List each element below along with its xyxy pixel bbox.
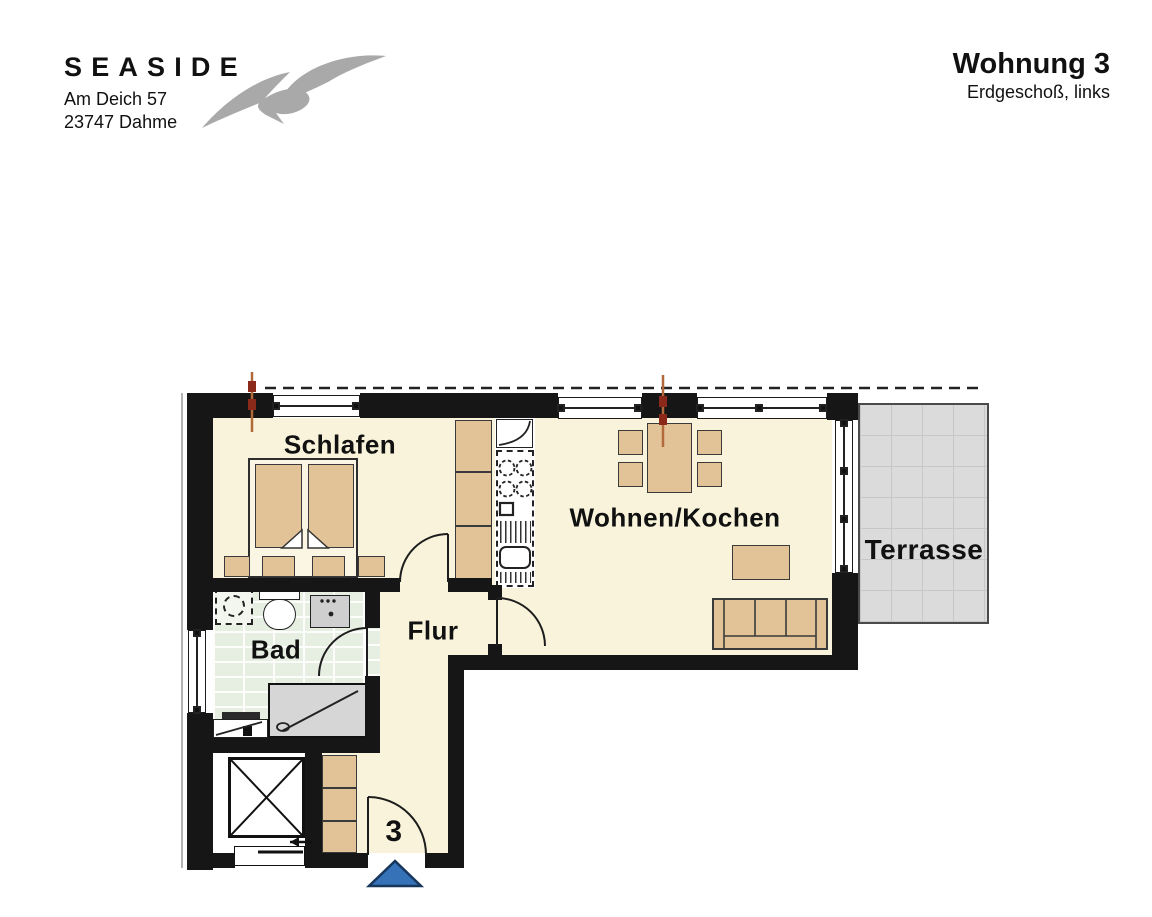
bathroom-door-opening — [365, 628, 380, 676]
wardrobe-shelf-line — [323, 820, 356, 822]
bedroom-wardrobe — [455, 420, 492, 580]
terrace-door-window — [835, 420, 853, 573]
entrance-arrow-icon — [369, 861, 421, 886]
wardrobe-shelf-line — [456, 525, 491, 527]
stair-threshold — [234, 846, 305, 866]
kitchen-appliance-hatch — [500, 572, 531, 583]
wall-segment — [187, 393, 213, 630]
radiator — [222, 712, 260, 719]
bedroom-door-opening — [400, 578, 448, 592]
bed-mattress-left — [255, 464, 302, 548]
room-label-terrace: Terrasse — [865, 534, 984, 566]
wall-segment — [360, 393, 558, 418]
page-subtitle: Erdgeschoß, links — [967, 82, 1110, 103]
dining-chair — [697, 462, 722, 487]
wall-segment — [187, 713, 213, 870]
page-title: Wohnung 3 — [953, 48, 1110, 81]
address-line2: 23747 Dahme — [64, 111, 177, 134]
wall-segment — [187, 853, 235, 868]
toilet-bowl — [263, 599, 296, 630]
room-label-living: Wohnen/Kochen — [569, 503, 780, 534]
entrance-wardrobe — [322, 755, 357, 853]
shower — [268, 683, 367, 738]
bed-mattress-right — [308, 464, 354, 548]
bed-foot-left — [262, 556, 295, 577]
entrance-number-label: 3 — [385, 815, 402, 849]
kitchen-sink-unit — [496, 419, 533, 448]
wardrobe-shelf-line — [323, 787, 356, 789]
brand-address: Am Deich 57 23747 Dahme — [64, 88, 177, 134]
brand-logo-text: SEASIDE — [64, 52, 247, 83]
seagull-right-wing — [284, 55, 386, 98]
room-label-bath: Bad — [251, 635, 302, 666]
room-label-hall: Flur — [407, 616, 458, 647]
room-label-bedroom: Schlafen — [284, 430, 396, 461]
kitchen-appliance-hatch — [500, 521, 531, 543]
wall-segment — [365, 578, 380, 628]
kitchen-basin — [499, 546, 531, 569]
bathroom-window — [188, 630, 206, 713]
elevator — [228, 757, 305, 838]
wall-segment — [448, 578, 492, 592]
wall-segment — [425, 853, 464, 868]
living-window-right — [697, 397, 827, 419]
stair-steps-box — [213, 719, 268, 738]
wall-segment — [832, 573, 858, 670]
wall-segment — [448, 655, 858, 670]
seagull-body — [258, 89, 309, 124]
wall-segment — [305, 853, 368, 868]
nightstand-right — [358, 556, 385, 577]
wall-segment — [187, 738, 380, 753]
wall-segment — [305, 753, 322, 853]
wardrobe-shelf-line — [456, 471, 491, 473]
bedroom-window — [273, 395, 360, 417]
wall-segment — [642, 393, 697, 418]
dining-chair — [618, 430, 643, 455]
address-line1: Am Deich 57 — [64, 88, 177, 111]
sofa — [712, 598, 828, 650]
coffee-table — [732, 545, 790, 580]
wall-segment — [488, 585, 502, 600]
dining-table — [647, 423, 692, 493]
bathroom-sink — [310, 595, 350, 628]
floorplan-page: SEASIDE Am Deich 57 23747 Dahme Wohnung … — [0, 0, 1152, 917]
washer-drum — [223, 595, 245, 617]
nightstand-left — [224, 556, 250, 577]
dining-chair — [618, 462, 643, 487]
washing-machine — [215, 587, 253, 625]
wall-segment — [448, 655, 464, 867]
terrace-area — [858, 403, 989, 624]
bed-foot-right — [312, 556, 345, 577]
steps-detail — [243, 726, 252, 736]
living-window-left — [558, 397, 642, 419]
wall-segment — [827, 393, 858, 420]
dining-chair — [697, 430, 722, 455]
